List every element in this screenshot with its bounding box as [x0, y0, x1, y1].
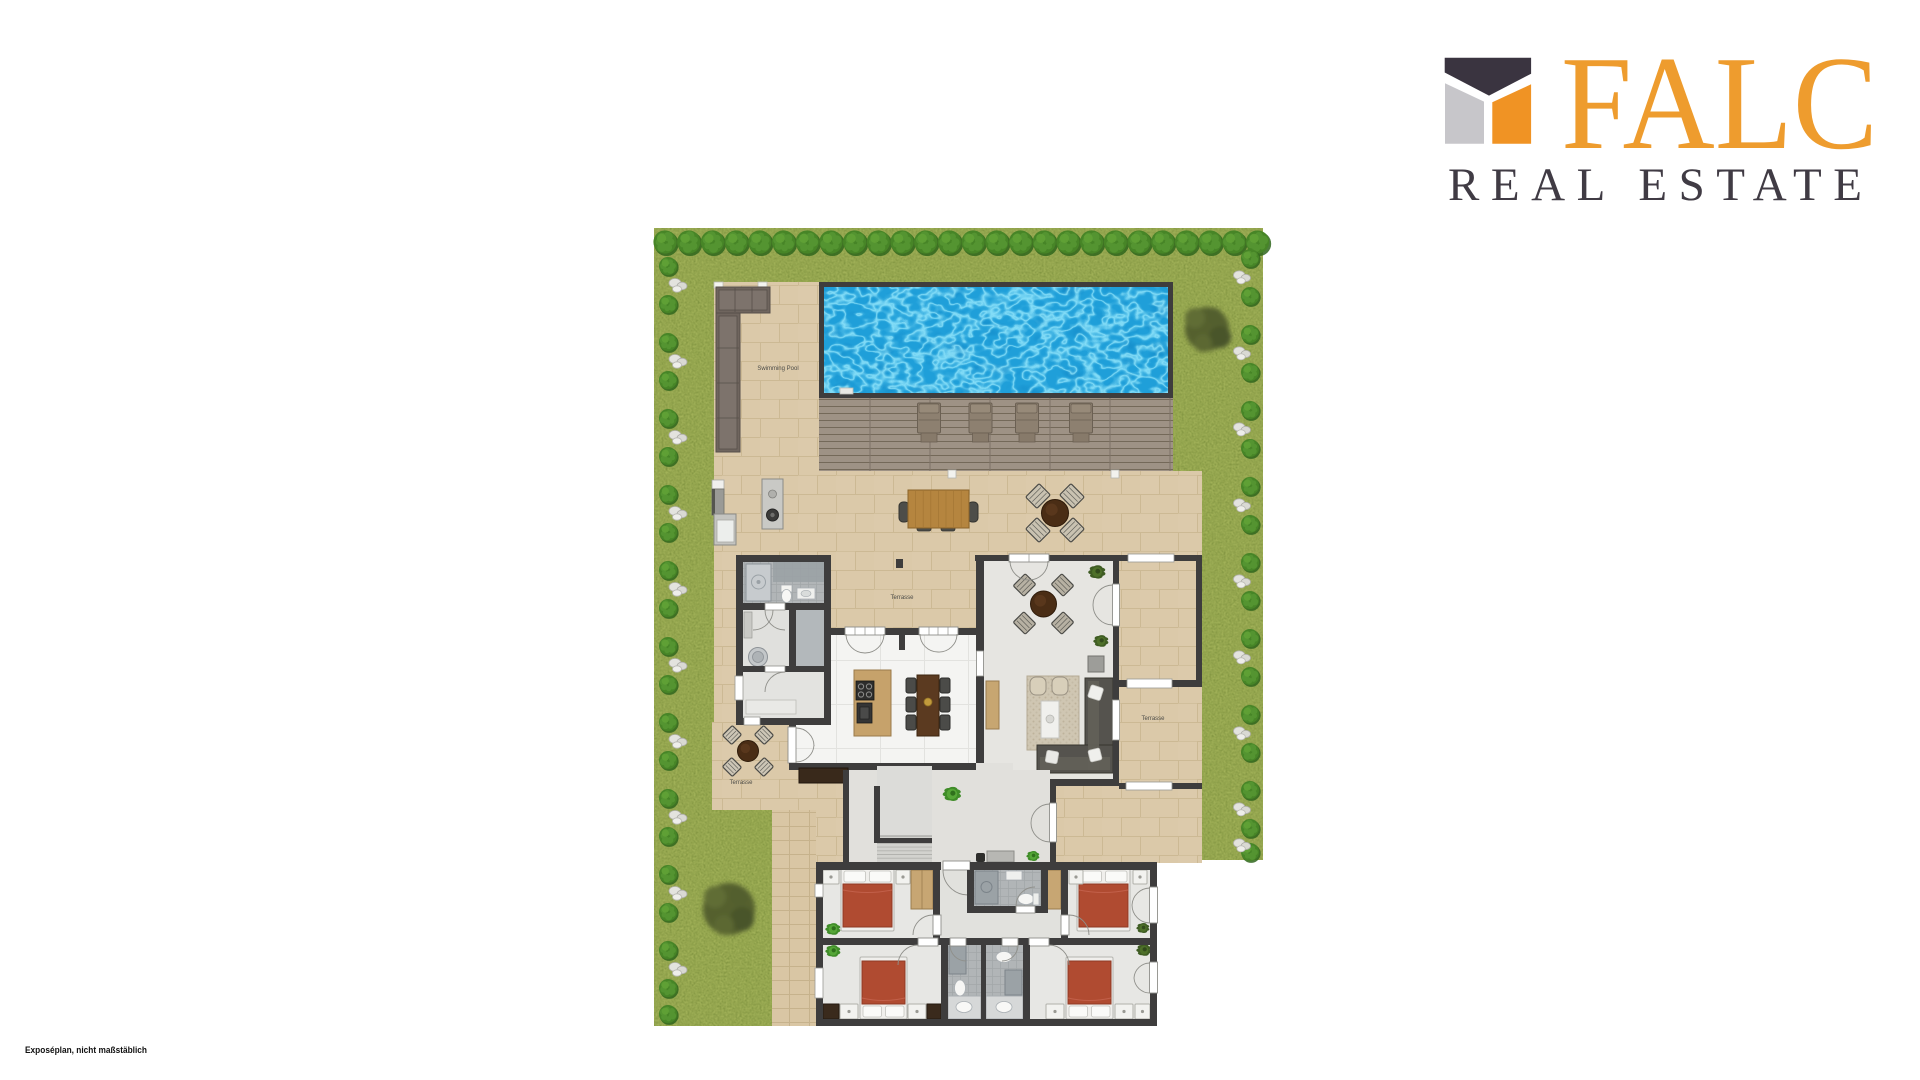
svg-text:Terrasse: Terrasse [1141, 716, 1165, 722]
svg-text:Swimming Pool: Swimming Pool [757, 366, 798, 372]
svg-text:FALC: FALC [1561, 29, 1878, 177]
svg-text:Terrasse: Terrasse [890, 595, 914, 601]
svg-text:Terrasse: Terrasse [729, 780, 753, 786]
svg-text:Exposéplan, nicht maßstäblich: Exposéplan, nicht maßstäblich [25, 1045, 147, 1056]
svg-text:REAL ESTATE: REAL ESTATE [1448, 159, 1862, 211]
